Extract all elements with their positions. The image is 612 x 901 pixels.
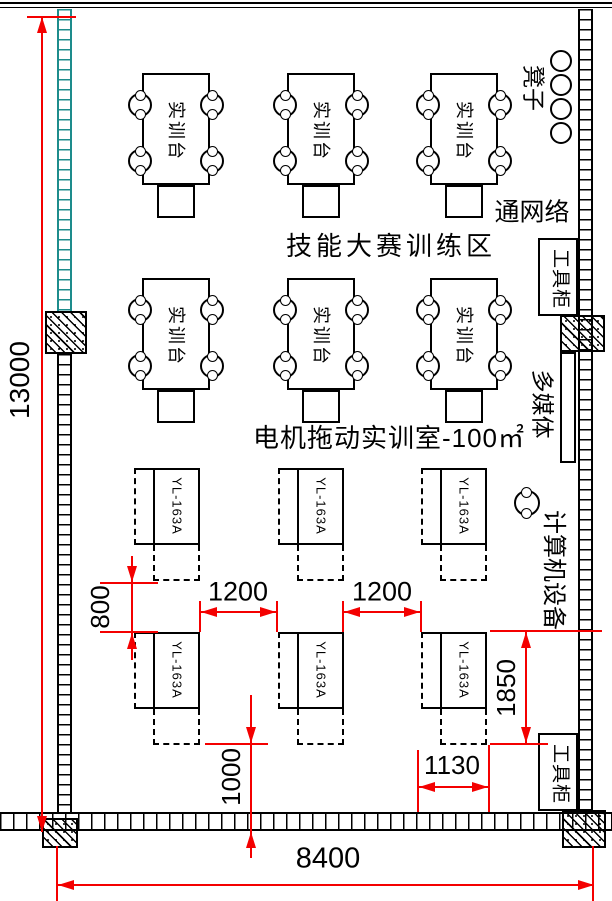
left-wall (57, 354, 72, 812)
bench-label: YL-163A (458, 641, 471, 699)
dim-1850-text: 1850 (493, 659, 519, 717)
table-label: 实训台 (455, 101, 473, 161)
bench-body (134, 468, 200, 545)
chair-icon (128, 93, 152, 117)
chair-icon (488, 93, 512, 117)
bench-body (421, 468, 487, 545)
chair-icon (273, 149, 297, 173)
computer-equipment-label: 计算机设备 (541, 510, 565, 630)
dim-800-text: 800 (87, 585, 113, 628)
dim-1850-tick-bottom (490, 743, 548, 745)
dim-1850-arrow-bottom (521, 727, 531, 743)
left-wall-window (57, 9, 72, 311)
tool-cabinet-label: 工具柜 (551, 249, 570, 309)
table-pedestal (445, 390, 483, 423)
dim-1200a-tick-right (276, 601, 278, 632)
stool-icon (550, 98, 572, 120)
chair-icon (128, 149, 152, 173)
right-wall (578, 9, 593, 812)
bench-label: YL-163A (171, 641, 184, 699)
dim-1200a-arrow-left (201, 607, 217, 617)
bench-label: YL-163A (315, 477, 328, 535)
dim-1200b-text: 1200 (352, 579, 412, 606)
chair-icon (416, 149, 440, 173)
dim-1000-arrow-bottom (246, 832, 256, 848)
dim-8400-line (58, 884, 594, 886)
column-pier-right (560, 315, 605, 352)
multimedia-panel (560, 352, 576, 463)
chair-icon (488, 298, 512, 322)
dim-8400-arrow-right (578, 880, 594, 890)
bench-label: YL-163A (458, 477, 471, 535)
tool-cabinet-label: 工具柜 (551, 744, 570, 804)
bench-body (421, 632, 487, 709)
dim-13000-line (41, 16, 43, 832)
training-area-label: 技能大赛训练区 (286, 233, 496, 259)
chair-icon (488, 354, 512, 378)
chair-icon (273, 93, 297, 117)
dim-800-arrow-bottom (127, 633, 137, 649)
dim-1200a-text: 1200 (208, 579, 268, 606)
column-pier-bottom-right (562, 810, 606, 848)
stool-icon (550, 122, 572, 144)
table-label: 实训台 (312, 306, 330, 366)
chair-icon (128, 298, 152, 322)
dim-1200a-arrow-right (260, 607, 276, 617)
table-label: 实训台 (312, 101, 330, 161)
dim-1000-text: 1000 (218, 748, 244, 806)
dim-1130-arrow-left (419, 782, 435, 792)
clearance-zone (153, 545, 200, 581)
dim-1200b-arrow-right (404, 607, 420, 617)
column-pier-bottom-left (42, 818, 78, 848)
chair-icon (200, 149, 224, 173)
clearance-zone (153, 709, 200, 745)
table-pedestal (157, 185, 195, 218)
bench-body (278, 632, 344, 709)
stool-icon (550, 74, 572, 96)
dim-1000-tick (205, 743, 268, 745)
chair-icon (345, 298, 369, 322)
chair-icon (416, 93, 440, 117)
tool-cabinet: 工具柜 (538, 238, 578, 316)
dim-1130-arrow-right (472, 782, 488, 792)
dim-8400-ext-right (592, 846, 594, 901)
chair-icon (514, 490, 540, 516)
clearance-zone (440, 709, 487, 745)
bench-divider (440, 632, 442, 709)
chair-icon (200, 93, 224, 117)
table-pedestal (157, 390, 195, 423)
chair-icon (416, 298, 440, 322)
table-pedestal (445, 185, 483, 218)
bench-divider (153, 468, 155, 545)
dim-8400-text: 8400 (296, 845, 361, 874)
chair-icon (488, 149, 512, 173)
chair-icon (345, 354, 369, 378)
bench-body (278, 468, 344, 545)
network-label: 通网络 (494, 201, 569, 226)
clearance-zone (297, 709, 344, 745)
chair-icon (273, 298, 297, 322)
dim-13000-arrow-top (37, 17, 47, 33)
dim-13000-tick (27, 16, 76, 18)
dim-1850-tick-top (490, 630, 602, 632)
bench-label: YL-163A (315, 641, 328, 699)
clearance-zone (440, 545, 487, 581)
clearance-zone (297, 545, 344, 581)
dim-1000-arrow-top (246, 727, 256, 743)
top-wall (0, 2, 612, 8)
dim-13000-arrow-bottom (37, 816, 47, 832)
dim-800-tick-top (100, 582, 158, 584)
table-label: 实训台 (455, 306, 473, 366)
dim-8400-arrow-left (58, 880, 74, 890)
bench-divider (440, 468, 442, 545)
table-pedestal (302, 185, 340, 218)
dim-8400-ext-left (56, 846, 58, 901)
dim-1130-ext-left (417, 750, 419, 812)
bench-divider (297, 632, 299, 709)
dim-800-arrow-top (127, 566, 137, 582)
bottom-wall (0, 812, 612, 831)
table-label: 实训台 (167, 306, 185, 366)
chair-icon (416, 354, 440, 378)
stool-icon (550, 50, 572, 72)
chair-icon (200, 354, 224, 378)
chair-icon (273, 354, 297, 378)
multimedia-label: 多媒体 (531, 370, 554, 439)
room-label: 电机拖动实训室-100㎡ (253, 425, 525, 451)
column-pier-left (45, 311, 87, 354)
dim-13000-text: 13000 (6, 341, 34, 419)
bench-divider (297, 468, 299, 545)
chair-icon (345, 149, 369, 173)
dim-1130-ext-right (488, 745, 490, 812)
bench-body (134, 632, 200, 709)
dim-1200b-arrow-left (344, 607, 360, 617)
chair-icon (200, 298, 224, 322)
table-pedestal (302, 390, 340, 423)
chair-icon (345, 93, 369, 117)
stools-label: 凳子 (522, 65, 545, 111)
table-label: 实训台 (167, 101, 185, 161)
bench-divider (153, 632, 155, 709)
dim-1130-text: 1130 (424, 752, 480, 778)
bench-label: YL-163A (171, 477, 184, 535)
chair-icon (128, 354, 152, 378)
floor-plan: 实训台 实训台 实训台 实训台 实训台 (0, 0, 612, 901)
dim-1200b-tick-right (420, 601, 422, 632)
dim-1850-arrow-top (521, 632, 531, 648)
